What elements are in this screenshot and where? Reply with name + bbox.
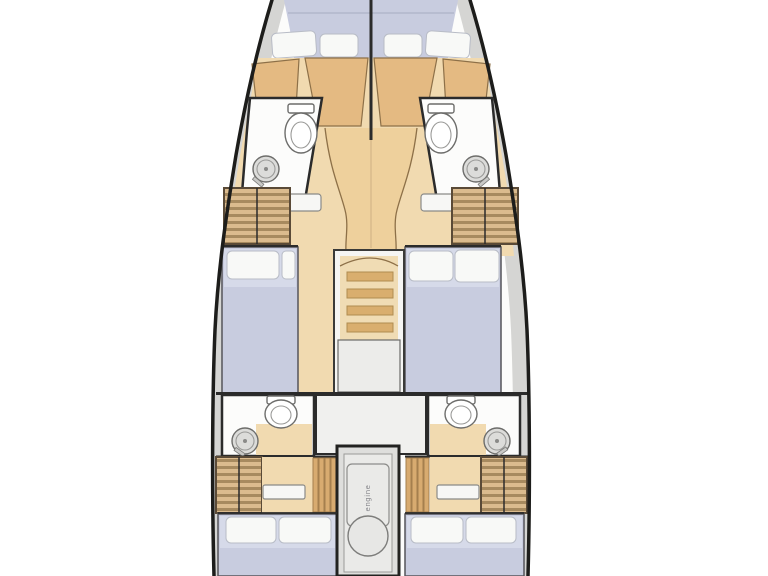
sink-drain: [264, 167, 268, 171]
toilet-icon: [425, 113, 457, 153]
sink-drain: [243, 439, 247, 443]
step-bench: [263, 485, 305, 499]
yacht-floor-plan: engine: [0, 0, 768, 576]
companionway-stairs: [334, 250, 404, 394]
toilet-tank: [428, 104, 454, 113]
pillow: [455, 250, 499, 282]
bolster: [282, 251, 295, 279]
toilet-tank: [288, 104, 314, 113]
door-slat: [325, 458, 330, 512]
door-slat: [412, 458, 417, 512]
door-slat: [418, 458, 423, 512]
door-slat: [313, 458, 318, 512]
floor-plan-canvas: engine: [0, 0, 768, 576]
stair-tread: [347, 289, 393, 298]
engine-compartment: engine: [337, 446, 399, 576]
door-slat: [424, 458, 429, 512]
pillow: [320, 34, 358, 57]
stair-tread: [347, 323, 393, 332]
stair-tread: [347, 306, 393, 315]
cabin-floor-strip: [298, 245, 336, 394]
double-berth-starboard: [405, 247, 501, 393]
head-floor-wood: [430, 424, 486, 455]
sink-drain: [474, 167, 478, 171]
seat-bench-starboard: [421, 194, 455, 211]
stair-tread: [347, 272, 393, 281]
pillow: [425, 30, 471, 58]
pillow: [411, 517, 463, 543]
wardrobe-forward-port: [224, 188, 290, 244]
stair-landing: [338, 340, 400, 392]
door-slat: [331, 458, 336, 512]
single-berth-port: [222, 245, 336, 394]
step-bench: [437, 485, 479, 499]
wardrobe-forward-starboard: [452, 188, 518, 244]
head-aft-starboard: [428, 395, 520, 456]
sink-drain: [495, 439, 499, 443]
seat-bench-port: [287, 194, 321, 211]
door-slat: [406, 458, 411, 512]
head-aft-port: [222, 395, 314, 457]
door-slat: [319, 458, 324, 512]
pillow: [227, 251, 279, 279]
aft-cabin-port: [216, 457, 337, 576]
pillow: [226, 517, 276, 543]
head-floor-wood: [256, 424, 312, 455]
pillow: [384, 34, 422, 57]
toilet-icon: [285, 113, 317, 153]
aft-cabin-starboard: [405, 457, 528, 576]
page-background: { "diagram": { "type": "yacht-floor-plan…: [0, 0, 768, 576]
engine-hatch-circle: [348, 516, 388, 556]
pillow: [271, 30, 317, 58]
pillow: [409, 251, 453, 281]
pillow: [279, 517, 331, 543]
pillow: [466, 517, 516, 543]
engine-label: engine: [364, 485, 372, 512]
